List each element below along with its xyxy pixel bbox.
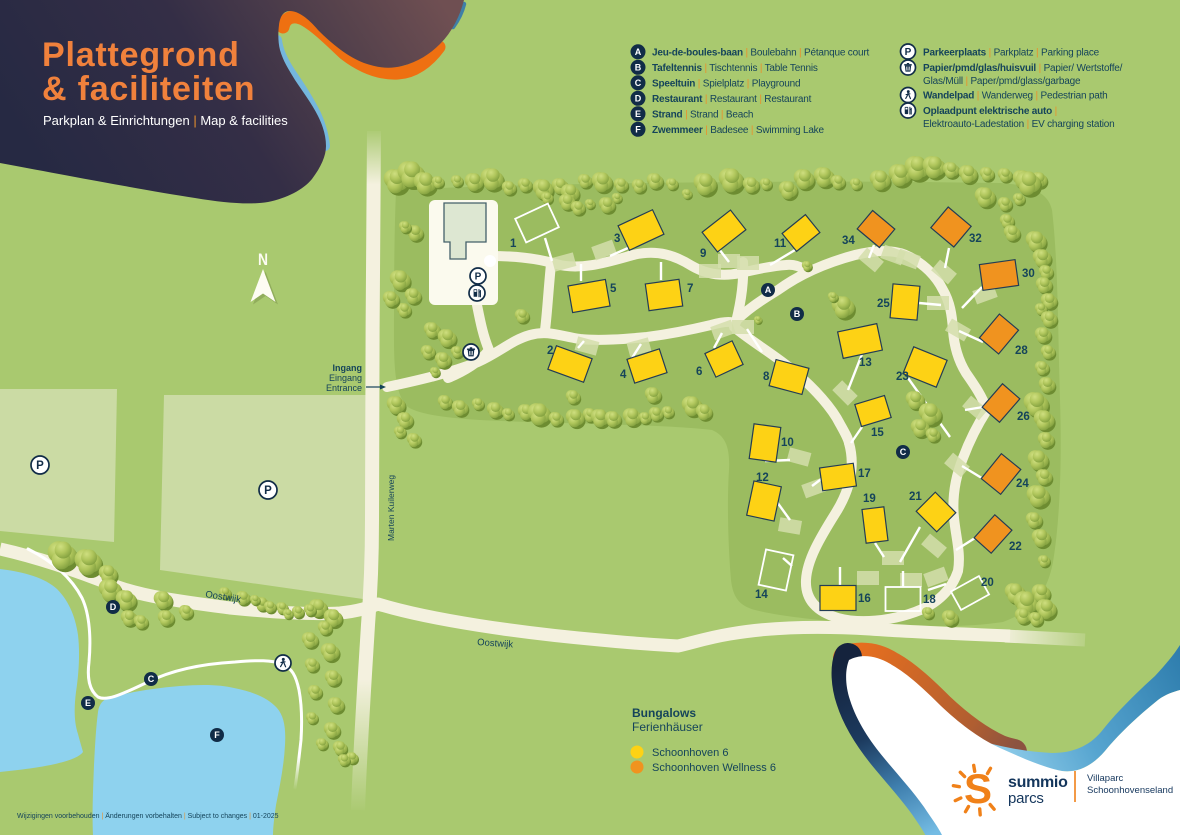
- svg-text:26: 26: [1017, 411, 1030, 423]
- svg-text:A: A: [765, 285, 772, 295]
- svg-text:P: P: [475, 272, 482, 283]
- svg-text:Marten Kuilerweg: Marten Kuilerweg: [386, 475, 396, 541]
- svg-text:P: P: [264, 485, 272, 497]
- svg-text:30: 30: [1022, 268, 1035, 280]
- svg-text:E: E: [635, 109, 641, 119]
- svg-text:14: 14: [755, 589, 768, 601]
- svg-text:Glas/Müll | Paper/pmd/glass/ga: Glas/Müll | Paper/pmd/glass/garbage: [923, 76, 1081, 87]
- svg-text:Ferienhäuser: Ferienhäuser: [632, 720, 703, 734]
- svg-text:10: 10: [781, 437, 794, 449]
- svg-text:Schoonhoven 6: Schoonhoven 6: [652, 747, 728, 759]
- svg-text:Wijzigingen voorbehouden | Änd: Wijzigingen voorbehouden | Änderungen vo…: [17, 812, 279, 820]
- svg-text:28: 28: [1015, 345, 1028, 357]
- svg-text:Elektroauto-Ladestation | EV c: Elektroauto-Ladestation | EV charging st…: [923, 119, 1115, 130]
- svg-text:17: 17: [858, 468, 871, 480]
- svg-text:E: E: [85, 698, 91, 708]
- svg-text:Zwemmeer | Badesee | Swimming: Zwemmeer | Badesee | Swimming Lake: [652, 125, 824, 136]
- svg-text:F: F: [635, 125, 641, 135]
- svg-text:B: B: [794, 309, 801, 319]
- svg-text:Plattegrond: Plattegrond: [42, 36, 240, 74]
- svg-text:Tafeltennis | Tischtennis | Ta: Tafeltennis | Tischtennis | Table Tennis: [652, 63, 818, 74]
- svg-text:summio: summio: [1008, 774, 1068, 791]
- svg-text:5: 5: [610, 283, 617, 295]
- svg-text:7: 7: [687, 283, 693, 295]
- svg-text:F: F: [214, 730, 220, 740]
- svg-text:Ingang: Ingang: [333, 363, 363, 373]
- svg-text:P: P: [36, 460, 44, 472]
- svg-text:18: 18: [923, 594, 936, 606]
- svg-text:16: 16: [858, 593, 871, 605]
- svg-text:A: A: [635, 47, 642, 57]
- svg-text:D: D: [635, 94, 642, 104]
- svg-text:6: 6: [696, 366, 702, 378]
- svg-text:Speeltuin | Spielplatz | Playg: Speeltuin | Spielplatz | Playground: [652, 79, 800, 90]
- svg-text:1: 1: [510, 238, 517, 250]
- svg-text:C: C: [148, 674, 155, 684]
- svg-text:Villaparc: Villaparc: [1087, 773, 1124, 784]
- svg-text:32: 32: [969, 233, 982, 245]
- svg-text:Restaurant | Restaurant | Rest: Restaurant | Restaurant | Restaurant: [652, 94, 812, 105]
- svg-text:34: 34: [842, 235, 855, 247]
- svg-text:Parkeerplaats | Parkplatz | Pa: Parkeerplaats | Parkplatz | Parking plac…: [923, 48, 1100, 59]
- svg-text:12: 12: [756, 472, 769, 484]
- svg-text:N: N: [258, 250, 268, 269]
- svg-text:Entrance: Entrance: [326, 383, 362, 393]
- svg-text:Oplaadpunt elektrische auto |: Oplaadpunt elektrische auto |: [923, 106, 1057, 117]
- svg-text:20: 20: [981, 577, 994, 589]
- svg-text:23: 23: [896, 371, 909, 383]
- svg-text:& faciliteiten: & faciliteiten: [42, 70, 255, 108]
- svg-text:3: 3: [614, 233, 620, 245]
- svg-text:13: 13: [859, 357, 872, 369]
- svg-text:21: 21: [909, 491, 922, 503]
- svg-text:2: 2: [547, 345, 553, 357]
- svg-text:parcs: parcs: [1008, 790, 1044, 807]
- svg-text:4: 4: [620, 369, 627, 381]
- svg-text:9: 9: [700, 248, 706, 260]
- svg-text:P: P: [905, 47, 912, 58]
- svg-text:Parkplan & Einrichtungen | Map: Parkplan & Einrichtungen | Map & facilit…: [43, 113, 288, 128]
- svg-text:19: 19: [863, 493, 876, 505]
- svg-text:Bungalows: Bungalows: [632, 706, 696, 720]
- svg-text:Eingang: Eingang: [329, 373, 362, 383]
- svg-text:22: 22: [1009, 541, 1022, 553]
- svg-text:Papier/pmd/glas/huisvuil | Pap: Papier/pmd/glas/huisvuil | Papier/ Werts…: [923, 63, 1123, 74]
- svg-text:C: C: [635, 78, 642, 88]
- svg-text:Wandelpad | Wanderweg | Pedest: Wandelpad | Wanderweg | Pedestrian path: [923, 91, 1108, 102]
- svg-text:24: 24: [1016, 478, 1029, 490]
- svg-text:8: 8: [763, 371, 770, 383]
- svg-text:15: 15: [871, 427, 884, 439]
- svg-text:C: C: [900, 447, 907, 457]
- svg-text:Schoonhovenseland: Schoonhovenseland: [1087, 785, 1173, 796]
- svg-text:B: B: [635, 63, 642, 73]
- svg-text:Schoonhoven Wellness 6: Schoonhoven Wellness 6: [652, 762, 776, 774]
- svg-text:11: 11: [774, 238, 787, 250]
- svg-text:25: 25: [877, 298, 890, 310]
- svg-text:Jeu-de-boules-baan | Boulebahn: Jeu-de-boules-baan | Boulebahn | Pétanqu…: [652, 48, 869, 59]
- svg-text:Strand | Strand | Beach: Strand | Strand | Beach: [652, 110, 753, 121]
- svg-text:D: D: [110, 602, 117, 612]
